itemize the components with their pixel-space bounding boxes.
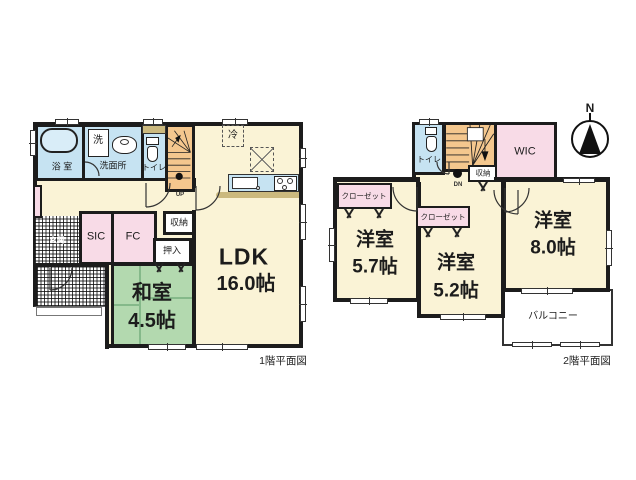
closet-door-icon xyxy=(342,209,355,219)
stairs-up-icon xyxy=(168,127,192,189)
toilet-bowl-icon xyxy=(426,136,437,152)
staircase-1f xyxy=(165,124,195,192)
storage-1f-label: 収納 xyxy=(170,219,188,228)
room80-size-label: 8.0帖 xyxy=(530,239,575,258)
floor2-caption: 2階平面図 xyxy=(563,356,611,367)
basin-bowl-icon xyxy=(120,139,129,145)
balcony-label: バルコニー xyxy=(528,312,578,322)
toilet-2f-label: トイレ xyxy=(417,156,441,164)
floorplan-canvas: UP 浴 室 洗 洗面所 トイレ 冷 LDK 16.0帖 収納 押入 SIC F… xyxy=(0,0,636,480)
entrance-porch xyxy=(33,267,105,307)
laundry-label: 洗 xyxy=(93,136,103,146)
washitsu-name-label: 和室 xyxy=(132,283,172,303)
room52-size-label: 5.2帖 xyxy=(433,282,478,301)
fridge-label: 冷 xyxy=(228,131,238,141)
toilet-bowl-icon xyxy=(147,146,158,162)
washitsu-door-icon xyxy=(174,263,187,273)
washitsu-door-icon xyxy=(152,263,165,273)
genkan-label: 玄関 xyxy=(50,236,65,244)
toilet-shelf xyxy=(142,125,166,134)
stairs-up-label: UP xyxy=(176,192,184,198)
bathtub-icon xyxy=(40,128,78,153)
toilet-tank-icon xyxy=(425,127,437,135)
bathroom-label: 浴 室 xyxy=(52,163,73,172)
room57-size-label: 5.7帖 xyxy=(352,258,397,277)
compass-needle-icon xyxy=(579,124,601,154)
storage-2f-label: 収納 xyxy=(476,169,491,177)
ldk-size-label: 16.0帖 xyxy=(217,274,276,294)
room80-name-label: 洋室 xyxy=(534,212,572,231)
pantry-icon xyxy=(250,147,274,172)
porch-step xyxy=(36,307,102,316)
kitchen-sink-icon xyxy=(232,177,258,189)
compass-north-label: N xyxy=(586,102,595,114)
stairs-down-icon xyxy=(446,125,494,169)
toilet-tank-icon xyxy=(146,137,159,145)
counter-edge xyxy=(216,192,299,198)
stairs-down-label: DN xyxy=(454,182,463,188)
room57-name-label: 洋室 xyxy=(356,231,394,250)
shoe-cabinet xyxy=(33,185,42,218)
room52-name-label: 洋室 xyxy=(437,254,475,273)
ldk-name-label: LDK xyxy=(219,246,269,269)
oshiire-label: 押入 xyxy=(163,247,181,256)
closet-57-label: クローゼット xyxy=(342,192,387,200)
closet-door-icon xyxy=(421,228,434,238)
storage-door-icon xyxy=(476,182,489,192)
closet-door-icon xyxy=(450,228,463,238)
sic-label: SIC xyxy=(87,232,105,243)
washitsu-size-label: 4.5帖 xyxy=(128,311,176,331)
floor2-right-section xyxy=(502,177,610,292)
fc-label: FC xyxy=(126,232,141,243)
wic-label: WIC xyxy=(514,147,535,158)
closet-52-label: クローゼット xyxy=(421,213,466,221)
floor1-caption: 1階平面図 xyxy=(259,356,307,367)
closet-door-icon xyxy=(372,209,385,219)
washroom-label: 洗面所 xyxy=(99,162,126,171)
toilet-1f-label: トイレ xyxy=(142,164,166,172)
